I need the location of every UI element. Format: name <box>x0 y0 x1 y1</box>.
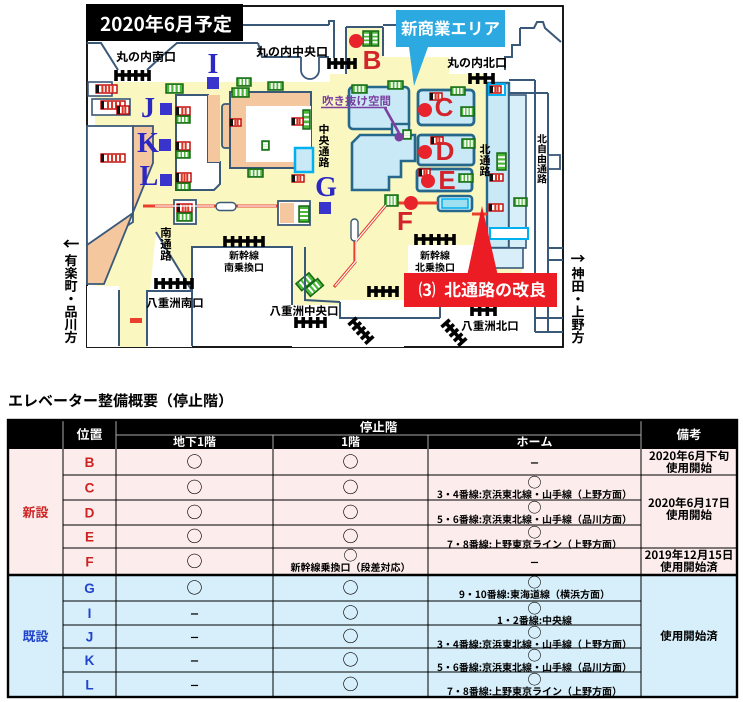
svg-text:F: F <box>85 555 93 570</box>
svg-text:I: I <box>208 49 219 80</box>
svg-text:D: D <box>85 506 95 521</box>
svg-text:J: J <box>141 93 155 124</box>
svg-text:L: L <box>85 678 93 693</box>
svg-text:C: C <box>435 92 454 122</box>
svg-text:E: E <box>85 530 94 545</box>
svg-text:F: F <box>397 206 413 236</box>
svg-text:E: E <box>438 165 455 195</box>
svg-text:K: K <box>85 653 95 668</box>
svg-text:J: J <box>86 630 94 645</box>
svg-text:G: G <box>315 172 337 203</box>
svg-text:D: D <box>436 136 455 166</box>
svg-text:C: C <box>85 481 95 496</box>
svg-text:B: B <box>85 455 95 470</box>
svg-text:G: G <box>84 581 95 596</box>
svg-text:I: I <box>88 606 92 621</box>
svg-text:L: L <box>140 161 159 192</box>
svg-text:B: B <box>363 45 382 75</box>
svg-text:K: K <box>137 128 159 159</box>
